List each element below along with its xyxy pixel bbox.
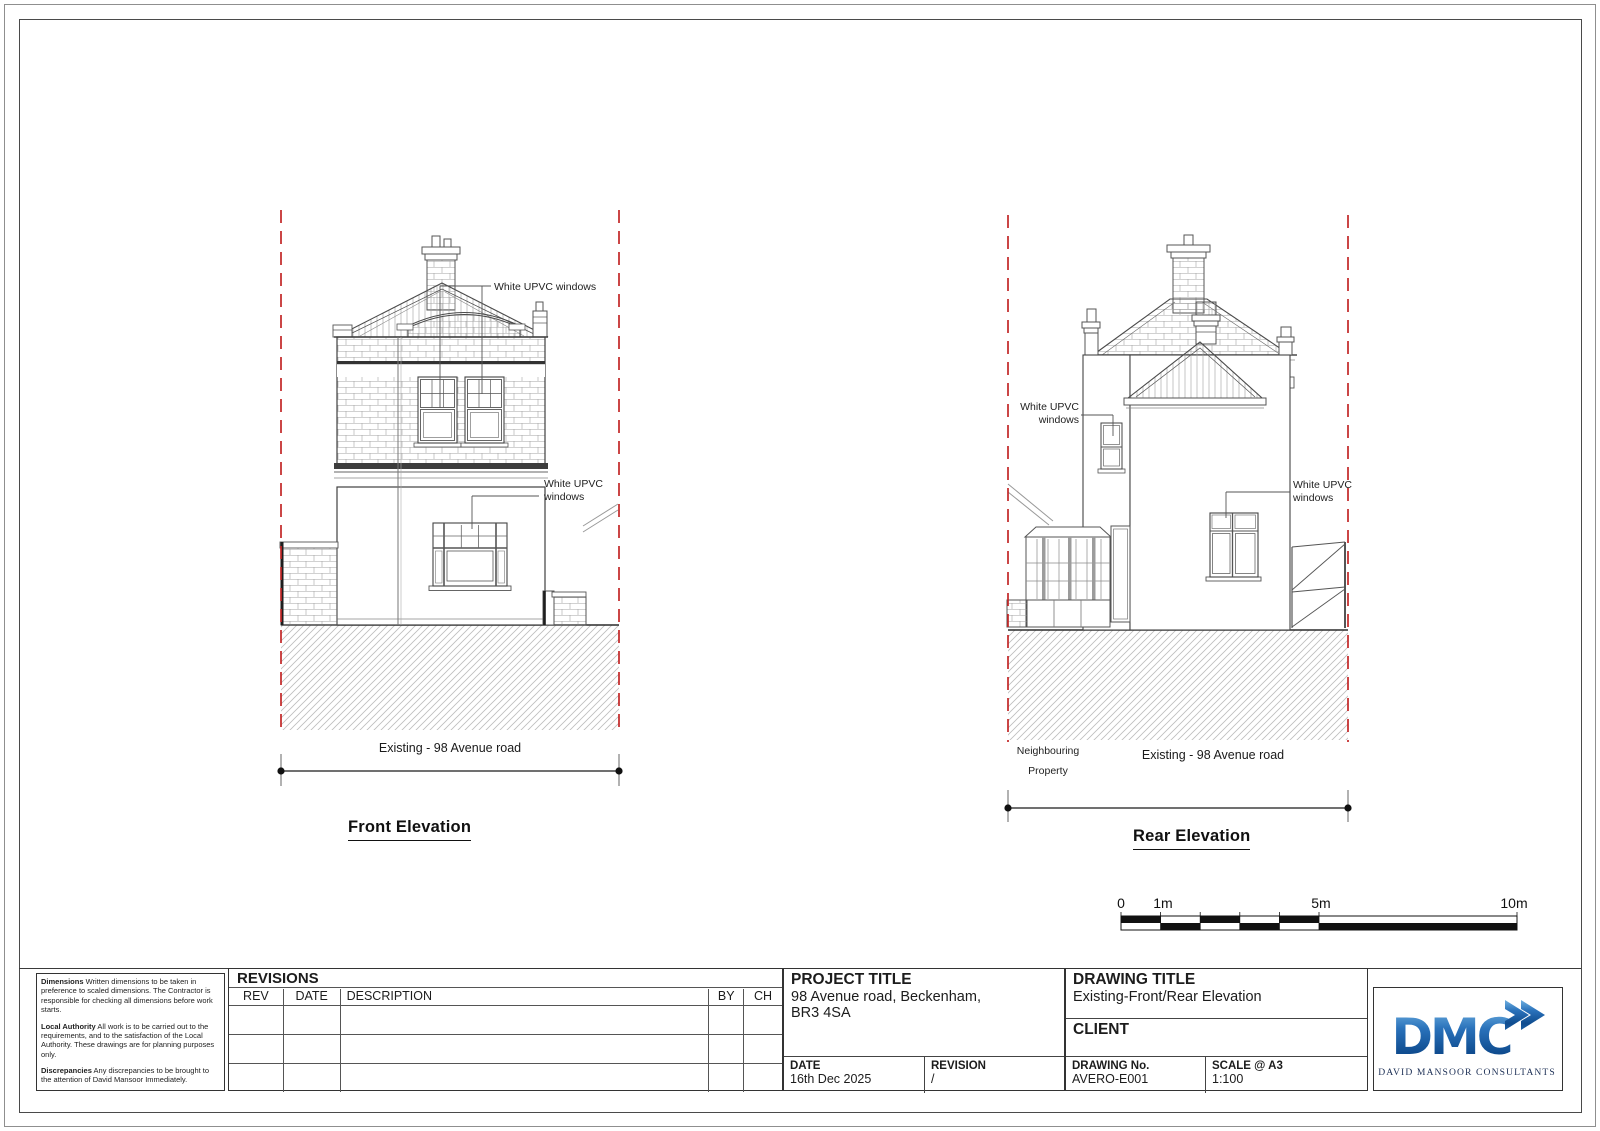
rear-left-windows-label-line2: windows — [1038, 414, 1079, 426]
front-ground-windows-label-line2: windows — [543, 491, 584, 503]
scale-value: 1:100 — [1212, 1072, 1361, 1086]
dmc-tagline: DAVID MANSOOR CONSULTANTS — [1378, 1067, 1556, 1078]
drawing-no-value: AVERO-E001 — [1072, 1072, 1199, 1086]
front-dimension-line — [277, 754, 622, 786]
scale-cell: SCALE @ A3 1:100 — [1206, 1057, 1367, 1093]
note-local-authority: Local Authority All work is to be carrie… — [41, 1022, 220, 1060]
revisions-col-by: BY — [709, 989, 744, 1005]
revisions-table: REVISIONS REV DATE DESCRIPTION BY CH — [228, 968, 783, 1091]
note-discrepancies: Discrepancies Any discrepancies to be br… — [41, 1066, 220, 1085]
rear-right-windows-label-line1: White UPVC — [1293, 479, 1352, 491]
drawing-title-label: DRAWING TITLE — [1073, 972, 1360, 989]
revisions-col-description: DESCRIPTION — [341, 989, 710, 1005]
revisions-empty-row — [229, 1034, 782, 1063]
drawing-no-label: DRAWING No. — [1072, 1060, 1199, 1072]
front-elevation-title: Front Elevation — [348, 818, 471, 841]
front-chimney-right — [533, 302, 547, 337]
scale-label: SCALE @ A3 — [1212, 1060, 1361, 1072]
dmc-logo: DMC DAVID MANSOOR CONSULTANTS — [1375, 990, 1561, 1088]
front-ground-windows-label-line1: White UPVC — [544, 478, 603, 490]
rear-chimney-left — [1082, 309, 1100, 355]
revision-value: / — [931, 1072, 1058, 1086]
notes-box: Dimensions Written dimensions to be take… — [36, 973, 225, 1091]
revisions-header-row: REV DATE DESCRIPTION BY CH — [229, 987, 782, 1005]
date-value: 16th Dec 2025 — [790, 1072, 918, 1086]
revisions-empty-row — [229, 1005, 782, 1034]
revisions-col-date: DATE — [284, 989, 341, 1005]
project-title-label: PROJECT TITLE — [791, 972, 1057, 989]
rear-elevation-drawing: White UPVC windows White UPVC windows Ne… — [960, 195, 1360, 825]
front-ground-window — [429, 523, 511, 591]
rear-gate — [1292, 542, 1345, 628]
rear-main-window — [1206, 513, 1261, 581]
drawing-title-block: DRAWING TITLE Existing-Front/Rear Elevat… — [1065, 968, 1368, 1091]
drawing-title-cell: DRAWING TITLE Existing-Front/Rear Elevat… — [1066, 969, 1367, 1018]
revisions-col-rev: REV — [229, 989, 284, 1005]
scale-bar: 0 1m 5m 10m — [1090, 872, 1550, 938]
client-label: CLIENT — [1073, 1022, 1360, 1039]
dmc-monogram: DMC — [1392, 1008, 1511, 1066]
revisions-col-ch: CH — [744, 989, 782, 1005]
rear-neighbouring-label-line2: Property — [1028, 765, 1068, 777]
scale-label-10m: 10m — [1500, 895, 1527, 911]
revision-cell: REVISION / — [925, 1057, 1064, 1093]
rear-left-windows-label-line1: White UPVC — [1020, 401, 1079, 413]
rear-right-windows-label-line2: windows — [1292, 492, 1333, 504]
front-upper-window-right — [461, 377, 508, 447]
rear-dimension-label: Existing - 98 Avenue road — [1142, 748, 1284, 762]
date-label: DATE — [790, 1060, 918, 1072]
rear-stair-window — [1098, 423, 1125, 473]
rear-elevation-title: Rear Elevation — [1133, 827, 1250, 850]
drawing-sheet: White UPVC windows White UPVC windows Ex… — [0, 0, 1600, 1131]
front-left-garden-wall — [280, 542, 338, 625]
project-title-block: PROJECT TITLE 98 Avenue road, Beckenham,… — [783, 968, 1065, 1091]
front-upper-windows-label: White UPVC windows — [494, 281, 596, 293]
revision-label: REVISION — [931, 1060, 1058, 1072]
project-address-line2: BR3 4SA — [791, 1005, 1057, 1022]
scale-label-1m: 1m — [1153, 895, 1172, 911]
front-dimension-label: Existing - 98 Avenue road — [379, 741, 521, 755]
drawing-no-cell: DRAWING No. AVERO-E001 — [1066, 1057, 1206, 1093]
rear-dimension-line — [1004, 790, 1351, 822]
scale-label-0: 0 — [1117, 895, 1125, 911]
project-address-line1: 98 Avenue road, Beckenham, — [791, 989, 1057, 1006]
front-ground-hatch — [281, 625, 619, 730]
revisions-title: REVISIONS — [229, 969, 782, 987]
front-elevation-drawing: White UPVC windows White UPVC windows Ex… — [230, 195, 630, 815]
scale-label-5m: 5m — [1311, 895, 1330, 911]
client-cell: CLIENT — [1066, 1018, 1367, 1056]
date-cell: DATE 16th Dec 2025 — [784, 1057, 925, 1093]
rear-ground-hatch — [1008, 630, 1348, 740]
drawing-title-value: Existing-Front/Rear Elevation — [1073, 989, 1360, 1006]
front-right-garden-wall — [543, 504, 618, 625]
project-title-cell: PROJECT TITLE 98 Avenue road, Beckenham,… — [784, 969, 1064, 1056]
company-logo-box: DMC DAVID MANSOOR CONSULTANTS — [1373, 987, 1563, 1091]
front-upper-window-left — [414, 377, 461, 447]
note-dimensions: Dimensions Written dimensions to be take… — [41, 977, 220, 1015]
dmc-arrow-icon — [1505, 1000, 1545, 1030]
rear-neighbouring-label-line1: Neighbouring — [1017, 745, 1080, 757]
scale-bar-segments — [1121, 912, 1517, 930]
revisions-empty-row — [229, 1063, 782, 1092]
rear-chimney-front — [1192, 302, 1220, 344]
